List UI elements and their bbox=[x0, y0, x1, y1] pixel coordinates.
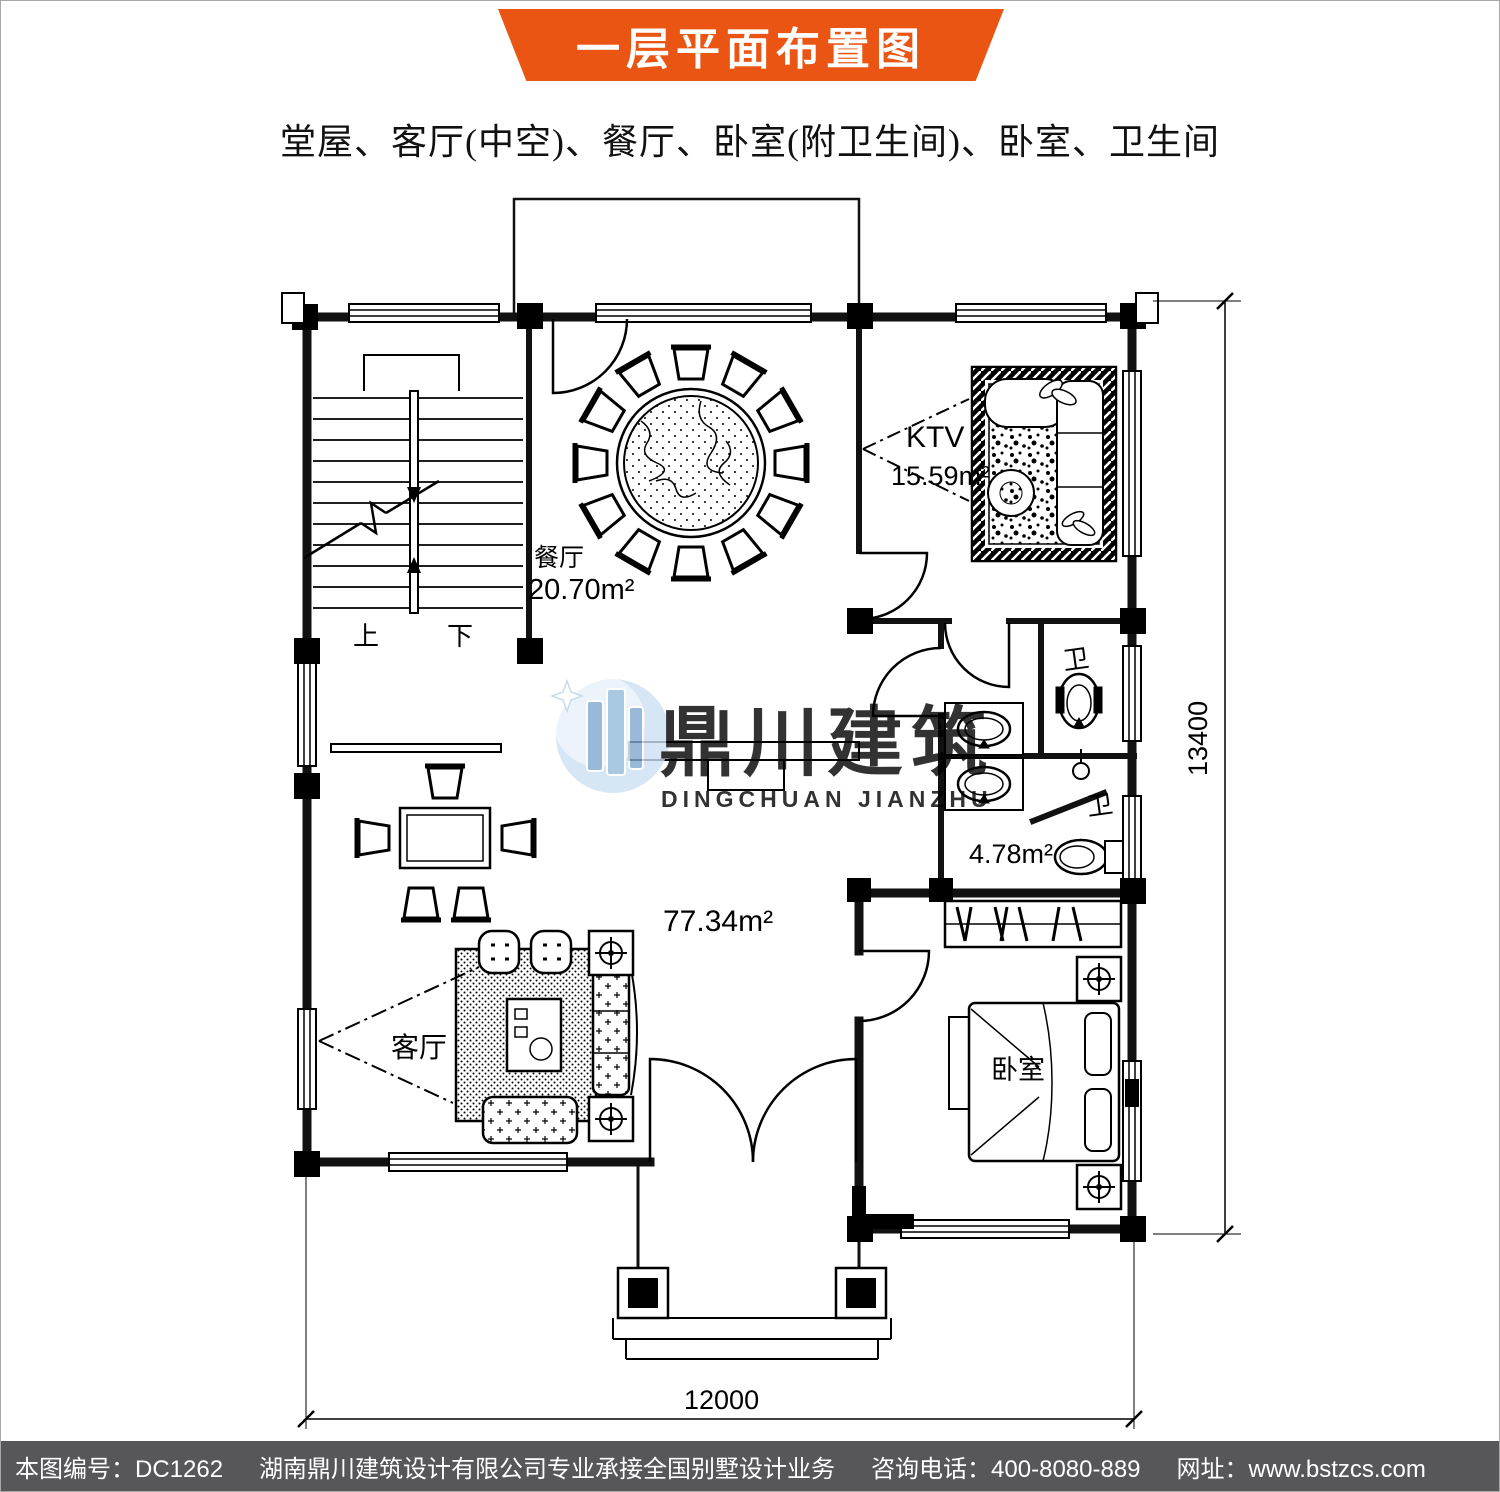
stair-down-label: 下 bbox=[447, 621, 473, 651]
entry-porch bbox=[613, 1268, 891, 1359]
bedroom-label: 卧室 bbox=[991, 1055, 1045, 1085]
footer-bar: 本图编号：DC1262 湖南鼎川建筑设计有限公司专业承接全国别墅设计业务 咨询电… bbox=[1, 1441, 1499, 1491]
dimension-height-value: 13400 bbox=[1183, 701, 1213, 776]
bedroom: 卧室 bbox=[945, 901, 1121, 1209]
watermark-en: DINGCHUAN JIANZHU bbox=[661, 786, 993, 812]
footer-doc-number: 本图编号：DC1262 bbox=[15, 1449, 223, 1484]
drawing-sheet: 一层平面布置图 堂屋、客厅(中空)、餐厅、卧室(附卫生间)、卧室、卫生间 bbox=[0, 0, 1500, 1492]
living-room: 客厅 77.34m² bbox=[319, 766, 773, 1143]
ktv-room: KTV 15.59m² bbox=[863, 367, 1116, 561]
staircase: 上 下 bbox=[304, 355, 523, 651]
floor-plan-svg: 上 下 餐厅 20.70m² bbox=[1, 1, 1500, 1492]
watermark-cn: 鼎川建筑 bbox=[659, 701, 995, 786]
dining-room-label: 餐厅 bbox=[534, 544, 584, 572]
bath-upper-label: 卫 bbox=[1061, 643, 1091, 676]
footer-website: 网址：www.bstzcs.com bbox=[1177, 1449, 1426, 1484]
hall-area: 77.34m² bbox=[663, 905, 773, 938]
footer-phone: 咨询电话：400-8080-889 bbox=[871, 1449, 1140, 1484]
ktv-room-label: KTV bbox=[906, 421, 964, 454]
ktv-room-area: 15.59m² bbox=[891, 461, 990, 491]
bath-lower-area: 4.78m² bbox=[969, 839, 1053, 869]
watermark: 鼎川建筑 DINGCHUAN JIANZHU bbox=[552, 675, 995, 812]
living-room-label: 客厅 bbox=[391, 1032, 447, 1063]
dimension-bottom: 12000 bbox=[298, 1171, 1142, 1429]
dining-table: 餐厅 20.70m² bbox=[528, 347, 807, 606]
dining-room-area: 20.70m² bbox=[528, 574, 635, 606]
bath-lower-label: 卫 bbox=[1085, 788, 1115, 821]
stair-up-label: 上 bbox=[353, 621, 379, 651]
dimension-right: 13400 bbox=[1153, 293, 1241, 1242]
footer-company: 湖南鼎川建筑设计有限公司专业承接全国别墅设计业务 bbox=[259, 1449, 835, 1484]
dimension-width-value: 12000 bbox=[684, 1385, 759, 1415]
